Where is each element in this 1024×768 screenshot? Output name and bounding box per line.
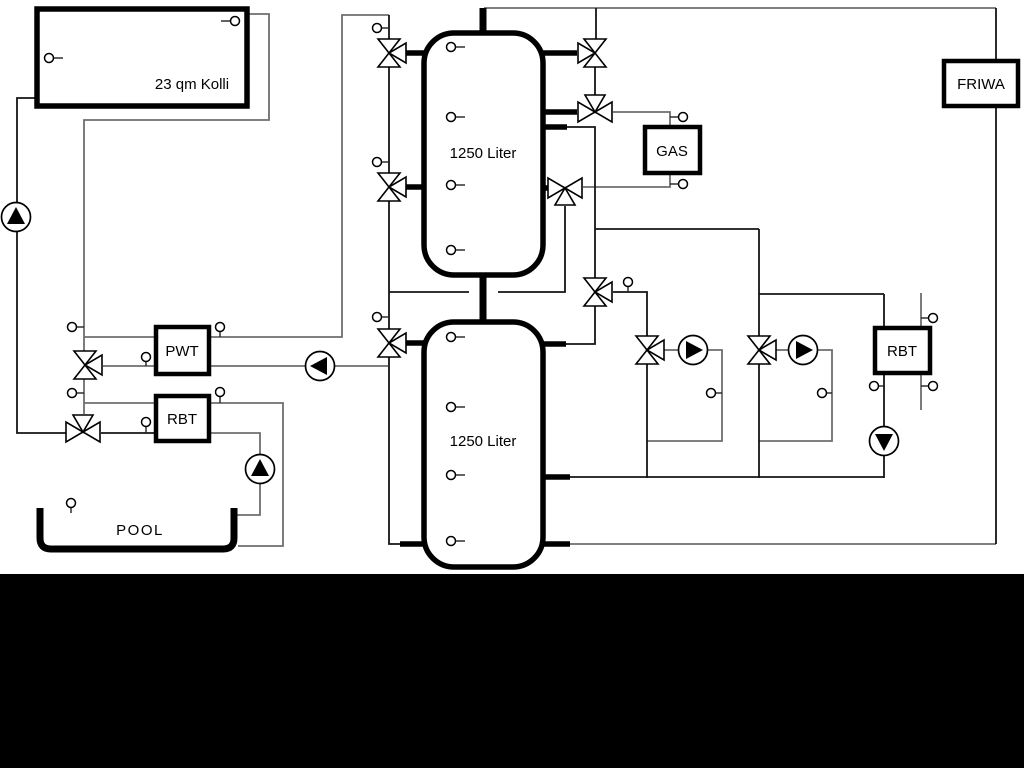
three-way-valve-tank1-left-top (378, 39, 406, 67)
pump-solar-up (2, 203, 31, 232)
sensor-circuit-1 (707, 389, 723, 398)
three-way-valve-heating-circuit-2 (748, 336, 776, 364)
rbt-left-label: RBT (167, 411, 197, 428)
sensor-pwt-in (142, 353, 151, 367)
rbt-left-unit: RBT (156, 396, 209, 441)
sensor-rbt-right-top (921, 314, 938, 323)
sensor-pwt-out (216, 323, 225, 338)
pwt-heat-exchanger: PWT (156, 327, 209, 374)
sensor-gas-return (670, 180, 688, 189)
rbt-right-label: RBT (887, 343, 917, 360)
buffer-tank-bottom-label: 1250 Liter (450, 433, 517, 450)
sensor-gas-supply (670, 113, 688, 122)
gas-boiler-label: GAS (656, 143, 688, 160)
three-way-valve-gas-supply (578, 95, 612, 122)
gas-boiler: GAS (645, 127, 700, 173)
pool-label: POOL (116, 522, 164, 539)
sensor-rbt-left-out (216, 388, 225, 404)
friwa-station: FRIWA (944, 61, 1018, 106)
sensor-solar-return (68, 323, 85, 332)
sensor-rbt-right-bottom (921, 382, 938, 391)
sensor-pool-circuit (68, 389, 85, 398)
three-way-valve-distribution (584, 278, 612, 306)
friwa-label: FRIWA (957, 76, 1005, 93)
three-way-valve-pwt (74, 351, 102, 379)
sensor-distribution (624, 278, 633, 293)
sensor-manifold-mid (373, 158, 390, 167)
solar-collector: 23 qm Kolli (37, 9, 247, 106)
pwt-label: PWT (165, 343, 198, 360)
three-way-valve-pool (66, 415, 100, 442)
pump-heating-circuit-2 (789, 336, 818, 365)
buffer-tank-top-label: 1250 Liter (450, 145, 517, 162)
three-way-valve-gas-return (548, 178, 582, 205)
three-way-valve-tank2-left (378, 329, 406, 357)
pump-pool-up (246, 455, 275, 484)
sensor-circuit-2 (818, 389, 833, 398)
three-way-valve-tank1-right-top (578, 39, 606, 67)
footer-black-band (0, 574, 1024, 768)
three-way-valve-tank1-left-bottom (378, 173, 406, 201)
pool-basin: POOL (40, 508, 234, 549)
pump-rbt-right-down (870, 427, 899, 456)
sensor-rbt-left-in (142, 418, 151, 434)
schematic-canvas: 23 qm Kolli 1250 Liter 1250 Liter GAS FR… (0, 0, 1024, 768)
three-way-valve-heating-circuit-1 (636, 336, 664, 364)
sensor-pool-water (67, 499, 76, 514)
rbt-right-unit: RBT (875, 328, 930, 373)
solar-collector-label: 23 qm Kolli (155, 76, 229, 93)
pump-heating-circuit-1 (679, 336, 708, 365)
sensor-manifold-low (373, 313, 390, 322)
buffer-tank-bottom: 1250 Liter (424, 322, 543, 567)
hydraulic-schematic: 23 qm Kolli 1250 Liter 1250 Liter GAS FR… (0, 0, 1024, 768)
sensor-rbt-right-left (870, 382, 885, 391)
pump-pwt-left (306, 352, 335, 381)
sensor-manifold-top (373, 24, 390, 33)
buffer-tank-top: 1250 Liter (424, 33, 543, 275)
